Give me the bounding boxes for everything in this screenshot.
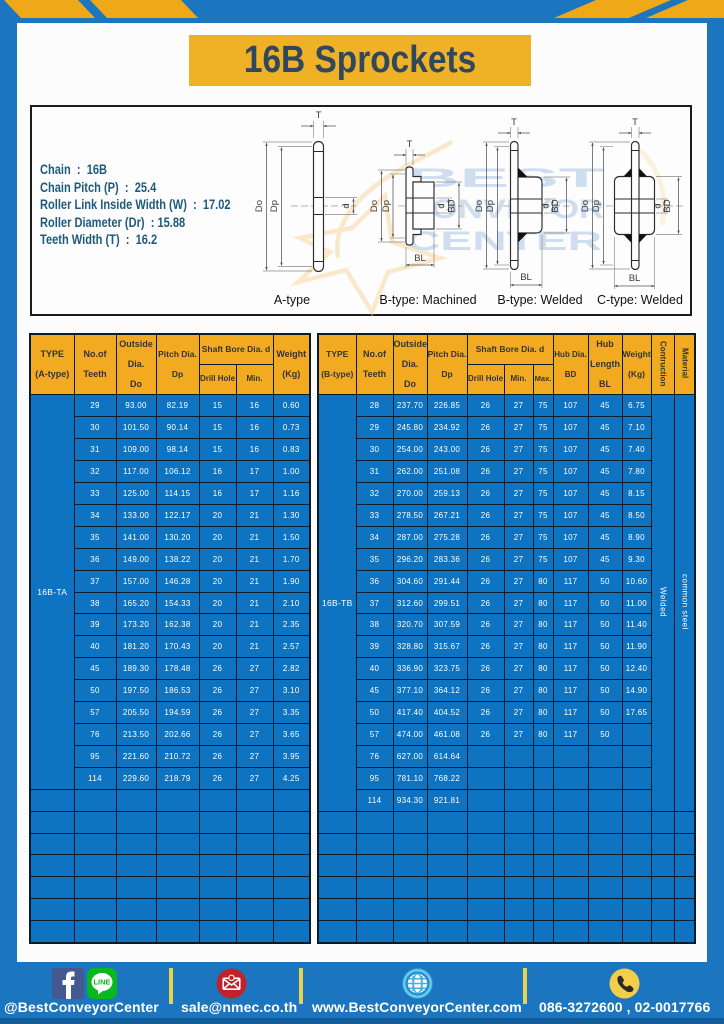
svg-text:BD: BD — [550, 199, 561, 212]
svg-text:BD: BD — [447, 199, 458, 212]
svg-text:Dp: Dp — [381, 200, 392, 212]
svg-text:BL: BL — [520, 272, 532, 283]
svg-text:T: T — [511, 117, 517, 128]
svg-text:T: T — [316, 110, 322, 121]
svg-text:LINE: LINE — [93, 978, 110, 987]
svg-text:Do: Do — [474, 200, 485, 212]
svg-text:B-type: Welded: B-type: Welded — [497, 293, 582, 307]
svg-text:Dp: Dp — [591, 200, 602, 212]
svg-text:BL: BL — [629, 273, 641, 284]
svg-text:CENTER: CENTER — [406, 226, 602, 256]
svg-text:B-type: Machined: B-type: Machined — [379, 293, 476, 307]
svg-text:T: T — [632, 117, 638, 128]
svg-text:Do: Do — [254, 200, 265, 212]
svg-text:T: T — [407, 139, 413, 150]
svg-text:Do: Do — [369, 200, 380, 212]
svg-text:BL: BL — [414, 253, 426, 264]
svg-text:Dp: Dp — [485, 200, 496, 212]
svg-text:BEST: BEST — [406, 163, 604, 193]
svg-text:Dp: Dp — [269, 200, 280, 212]
svg-text:d: d — [341, 203, 352, 208]
svg-text:BD: BD — [662, 199, 673, 212]
svg-text:Do: Do — [580, 200, 591, 212]
svg-text:A-type: A-type — [274, 293, 310, 307]
svg-text:d: d — [436, 203, 447, 208]
svg-text:C-type: Welded: C-type: Welded — [597, 293, 683, 307]
